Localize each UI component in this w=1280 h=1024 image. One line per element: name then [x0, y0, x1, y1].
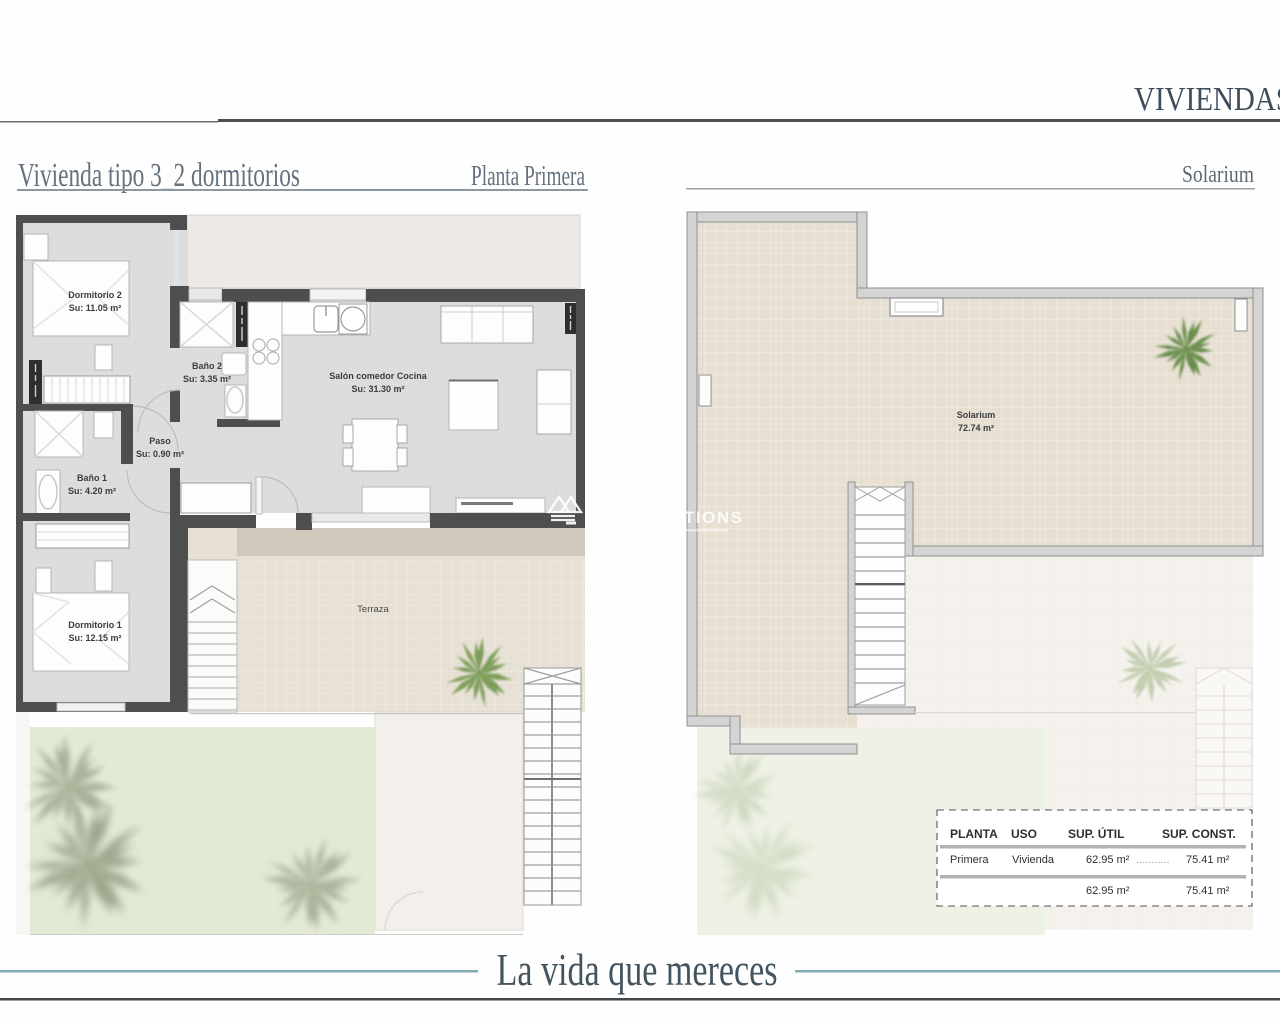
- svg-text:Su: 0.90 m²: Su: 0.90 m²: [136, 449, 184, 459]
- svg-text:SUP. ÚTIL: SUP. ÚTIL: [1068, 826, 1124, 841]
- svg-text:Su: 3.35 m²: Su: 3.35 m²: [183, 374, 231, 384]
- svg-text:Vivienda tipo 3_2 dormitorios: Vivienda tipo 3_2 dormitorios: [18, 157, 300, 194]
- svg-text:Paso: Paso: [149, 436, 171, 446]
- svg-text:Su: 4.20 m²: Su: 4.20 m²: [68, 486, 116, 496]
- svg-text:62.95 m²: 62.95 m²: [1086, 885, 1130, 897]
- svg-text:Primera: Primera: [950, 854, 989, 866]
- svg-text:Solarium: Solarium: [1182, 162, 1254, 188]
- svg-text:Dormitorio 1: Dormitorio 1: [68, 620, 122, 630]
- svg-text:VIVIENDAS: VIVIENDAS: [1134, 81, 1280, 118]
- svg-text:72.74 m²: 72.74 m²: [958, 423, 994, 433]
- svg-text:USO: USO: [1011, 827, 1037, 841]
- svg-text:Vivienda: Vivienda: [1012, 854, 1055, 866]
- svg-text:Su: 12.15 m²: Su: 12.15 m²: [68, 633, 121, 643]
- svg-text:Planta Primera: Planta Primera: [471, 160, 585, 192]
- svg-text:La vida que mereces: La vida que mereces: [497, 945, 778, 995]
- svg-text:Baño 2: Baño 2: [192, 361, 222, 371]
- svg-text:...........: ...........: [1136, 854, 1170, 866]
- svg-text:TIONS: TIONS: [684, 508, 743, 527]
- svg-text:Terraza: Terraza: [357, 604, 389, 615]
- svg-text:62.95 m²: 62.95 m²: [1086, 854, 1130, 866]
- svg-text:Solarium: Solarium: [957, 410, 996, 420]
- svg-text:Su: 11.05 m²: Su: 11.05 m²: [69, 303, 122, 313]
- svg-text:Salón comedor Cocina: Salón comedor Cocina: [329, 371, 428, 381]
- svg-text:Dormitorio 2: Dormitorio 2: [68, 290, 122, 300]
- svg-text:SUP. CONST.: SUP. CONST.: [1162, 827, 1236, 841]
- svg-text:PLANTA: PLANTA: [950, 827, 998, 841]
- svg-text:Su: 31.30 m²: Su: 31.30 m²: [351, 384, 404, 394]
- svg-text:75.41 m²: 75.41 m²: [1186, 854, 1230, 866]
- svg-text:Baño 1: Baño 1: [77, 473, 107, 483]
- svg-text:75.41 m²: 75.41 m²: [1186, 885, 1230, 897]
